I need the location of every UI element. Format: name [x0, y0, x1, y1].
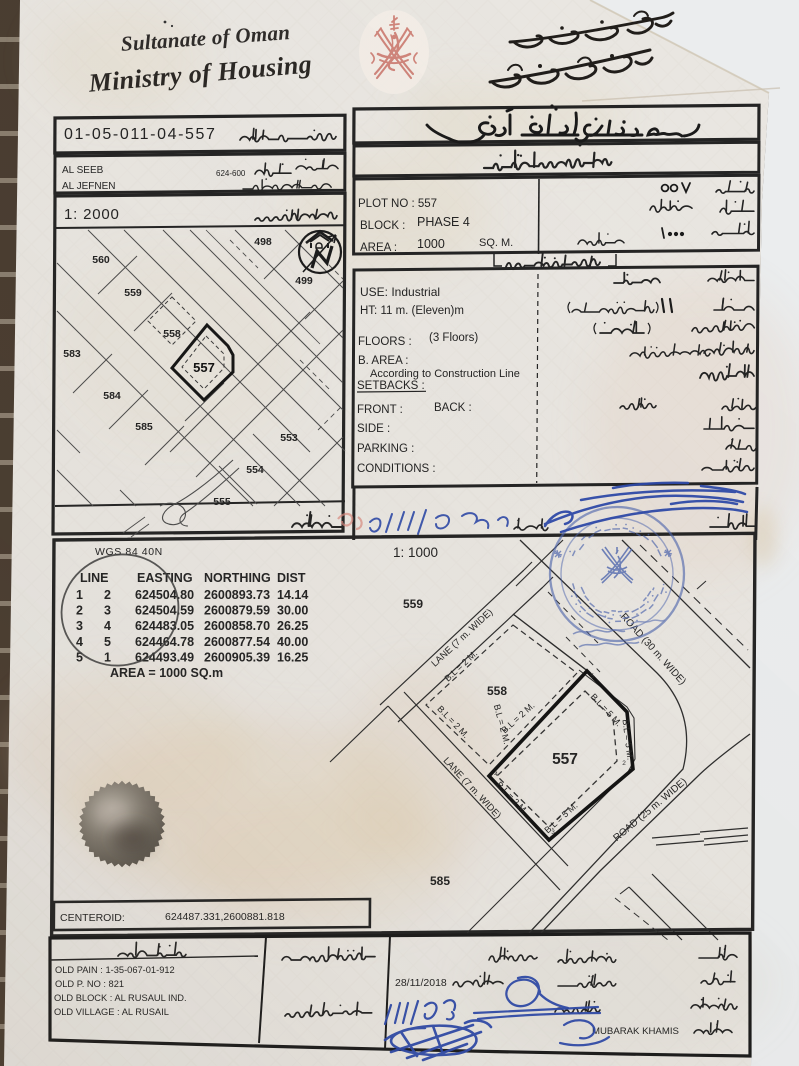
svg-text:624464.78: 624464.78 — [135, 635, 194, 649]
svg-text:2: 2 — [622, 760, 626, 767]
svg-text:40.00: 40.00 — [277, 635, 308, 649]
svg-text:2600877.54: 2600877.54 — [204, 635, 270, 649]
svg-text:584: 584 — [103, 390, 121, 402]
svg-text:MUBARAK KHAMIS: MUBARAK KHAMIS — [592, 1026, 679, 1037]
svg-text:498: 498 — [254, 236, 272, 248]
svg-text:OLD P. NO : 821: OLD P. NO : 821 — [55, 979, 124, 989]
svg-text:(3 Floors): (3 Floors) — [429, 332, 478, 344]
svg-text:30.00: 30.00 — [277, 604, 308, 618]
svg-text:1: 1000: 1: 1000 — [393, 545, 438, 560]
svg-text:624504.80: 624504.80 — [135, 588, 194, 602]
svg-text:OLD BLOCK : AL RUSAUL IND.: OLD BLOCK : AL RUSAUL IND. — [54, 993, 187, 1003]
svg-text:DIST: DIST — [277, 571, 306, 585]
svg-text:4: 4 — [494, 771, 498, 778]
svg-text:AL JEFNEN: AL JEFNEN — [62, 181, 116, 192]
svg-text:BACK :: BACK : — [434, 402, 472, 414]
svg-text:2: 2 — [104, 588, 111, 602]
svg-text:2600893.73: 2600893.73 — [204, 588, 270, 602]
svg-text:1: 1 — [76, 588, 83, 602]
svg-text:1000: 1000 — [417, 237, 445, 251]
svg-text:554: 554 — [246, 464, 264, 476]
svg-text:585: 585 — [135, 421, 153, 433]
svg-text:SETBACKS :: SETBACKS : — [357, 380, 425, 392]
svg-text:AREA = 1000 SQ.m: AREA = 1000 SQ.m — [110, 666, 223, 680]
svg-text:2: 2 — [76, 604, 83, 618]
svg-text:1: 2000: 1: 2000 — [64, 206, 120, 223]
svg-text:OLD VILLAGE : AL RUSAIL: OLD VILLAGE : AL RUSAIL — [54, 1007, 169, 1017]
svg-text:553: 553 — [280, 432, 298, 444]
svg-text:PARKING :: PARKING : — [357, 443, 414, 455]
svg-text:26.25: 26.25 — [277, 619, 308, 633]
svg-text:FLOORS :: FLOORS : — [358, 336, 412, 348]
svg-text:583: 583 — [63, 348, 81, 360]
svg-text:585: 585 — [430, 874, 450, 888]
svg-text:28/11/2018: 28/11/2018 — [395, 977, 447, 989]
svg-text:USE: Industrial: USE: Industrial — [360, 285, 440, 299]
svg-text:4: 4 — [104, 619, 111, 633]
svg-text:SIDE :: SIDE : — [357, 423, 390, 435]
svg-text:CENTEROID:: CENTEROID: — [60, 912, 125, 924]
svg-text:LINE: LINE — [80, 571, 108, 585]
svg-text:557: 557 — [193, 360, 215, 375]
svg-text:560: 560 — [92, 254, 110, 266]
svg-text:16.25: 16.25 — [277, 650, 308, 664]
svg-text:559: 559 — [124, 287, 142, 299]
svg-text:PHASE 4: PHASE 4 — [417, 215, 470, 229]
svg-text:624504.59: 624504.59 — [135, 604, 194, 618]
svg-text:624483.05: 624483.05 — [135, 619, 194, 633]
svg-text:5: 5 — [590, 673, 594, 680]
svg-text:5: 5 — [104, 635, 111, 649]
svg-text:624493.49: 624493.49 — [135, 650, 194, 664]
svg-text:557: 557 — [552, 751, 578, 768]
svg-text:14.14: 14.14 — [277, 588, 308, 602]
svg-text:624487.331,2600881.818: 624487.331,2600881.818 — [165, 911, 285, 923]
svg-text:2600905.39: 2600905.39 — [204, 650, 270, 664]
svg-text:4: 4 — [76, 635, 83, 649]
svg-text:2600858.70: 2600858.70 — [204, 619, 270, 633]
svg-text:3: 3 — [104, 604, 111, 618]
svg-text:1: 1 — [104, 650, 111, 664]
svg-text:558: 558 — [163, 328, 181, 340]
svg-text:FRONT :: FRONT : — [357, 404, 403, 416]
svg-text:559: 559 — [403, 597, 423, 611]
svg-text:624-600: 624-600 — [216, 169, 246, 178]
svg-text:555: 555 — [213, 496, 231, 508]
svg-text:AL SEEB: AL SEEB — [62, 165, 104, 176]
svg-text:558: 558 — [487, 684, 507, 698]
svg-text:01-05-011-04-557: 01-05-011-04-557 — [64, 126, 217, 143]
svg-text:499: 499 — [295, 275, 313, 287]
svg-text:PLOT NO : 557: PLOT NO : 557 — [358, 198, 437, 210]
svg-text:CONDITIONS :: CONDITIONS : — [357, 463, 436, 475]
svg-text:OLD PAIN : 1-35-067-01-912: OLD PAIN : 1-35-067-01-912 — [55, 965, 175, 975]
svg-text:BLOCK :: BLOCK : — [360, 220, 405, 232]
svg-text:AREA :: AREA : — [360, 242, 397, 254]
svg-text:3: 3 — [76, 619, 83, 633]
svg-text:HT: 11 m. (Eleven)m: HT: 11 m. (Eleven)m — [360, 305, 464, 317]
svg-text:B. AREA :: B. AREA : — [358, 355, 409, 367]
svg-text:2600879.59: 2600879.59 — [204, 604, 270, 618]
svg-text:NORTHING: NORTHING — [204, 571, 271, 585]
svg-text:SQ. M.: SQ. M. — [479, 237, 513, 249]
svg-text:According to Construction Line: According to Construction Line — [370, 368, 520, 380]
